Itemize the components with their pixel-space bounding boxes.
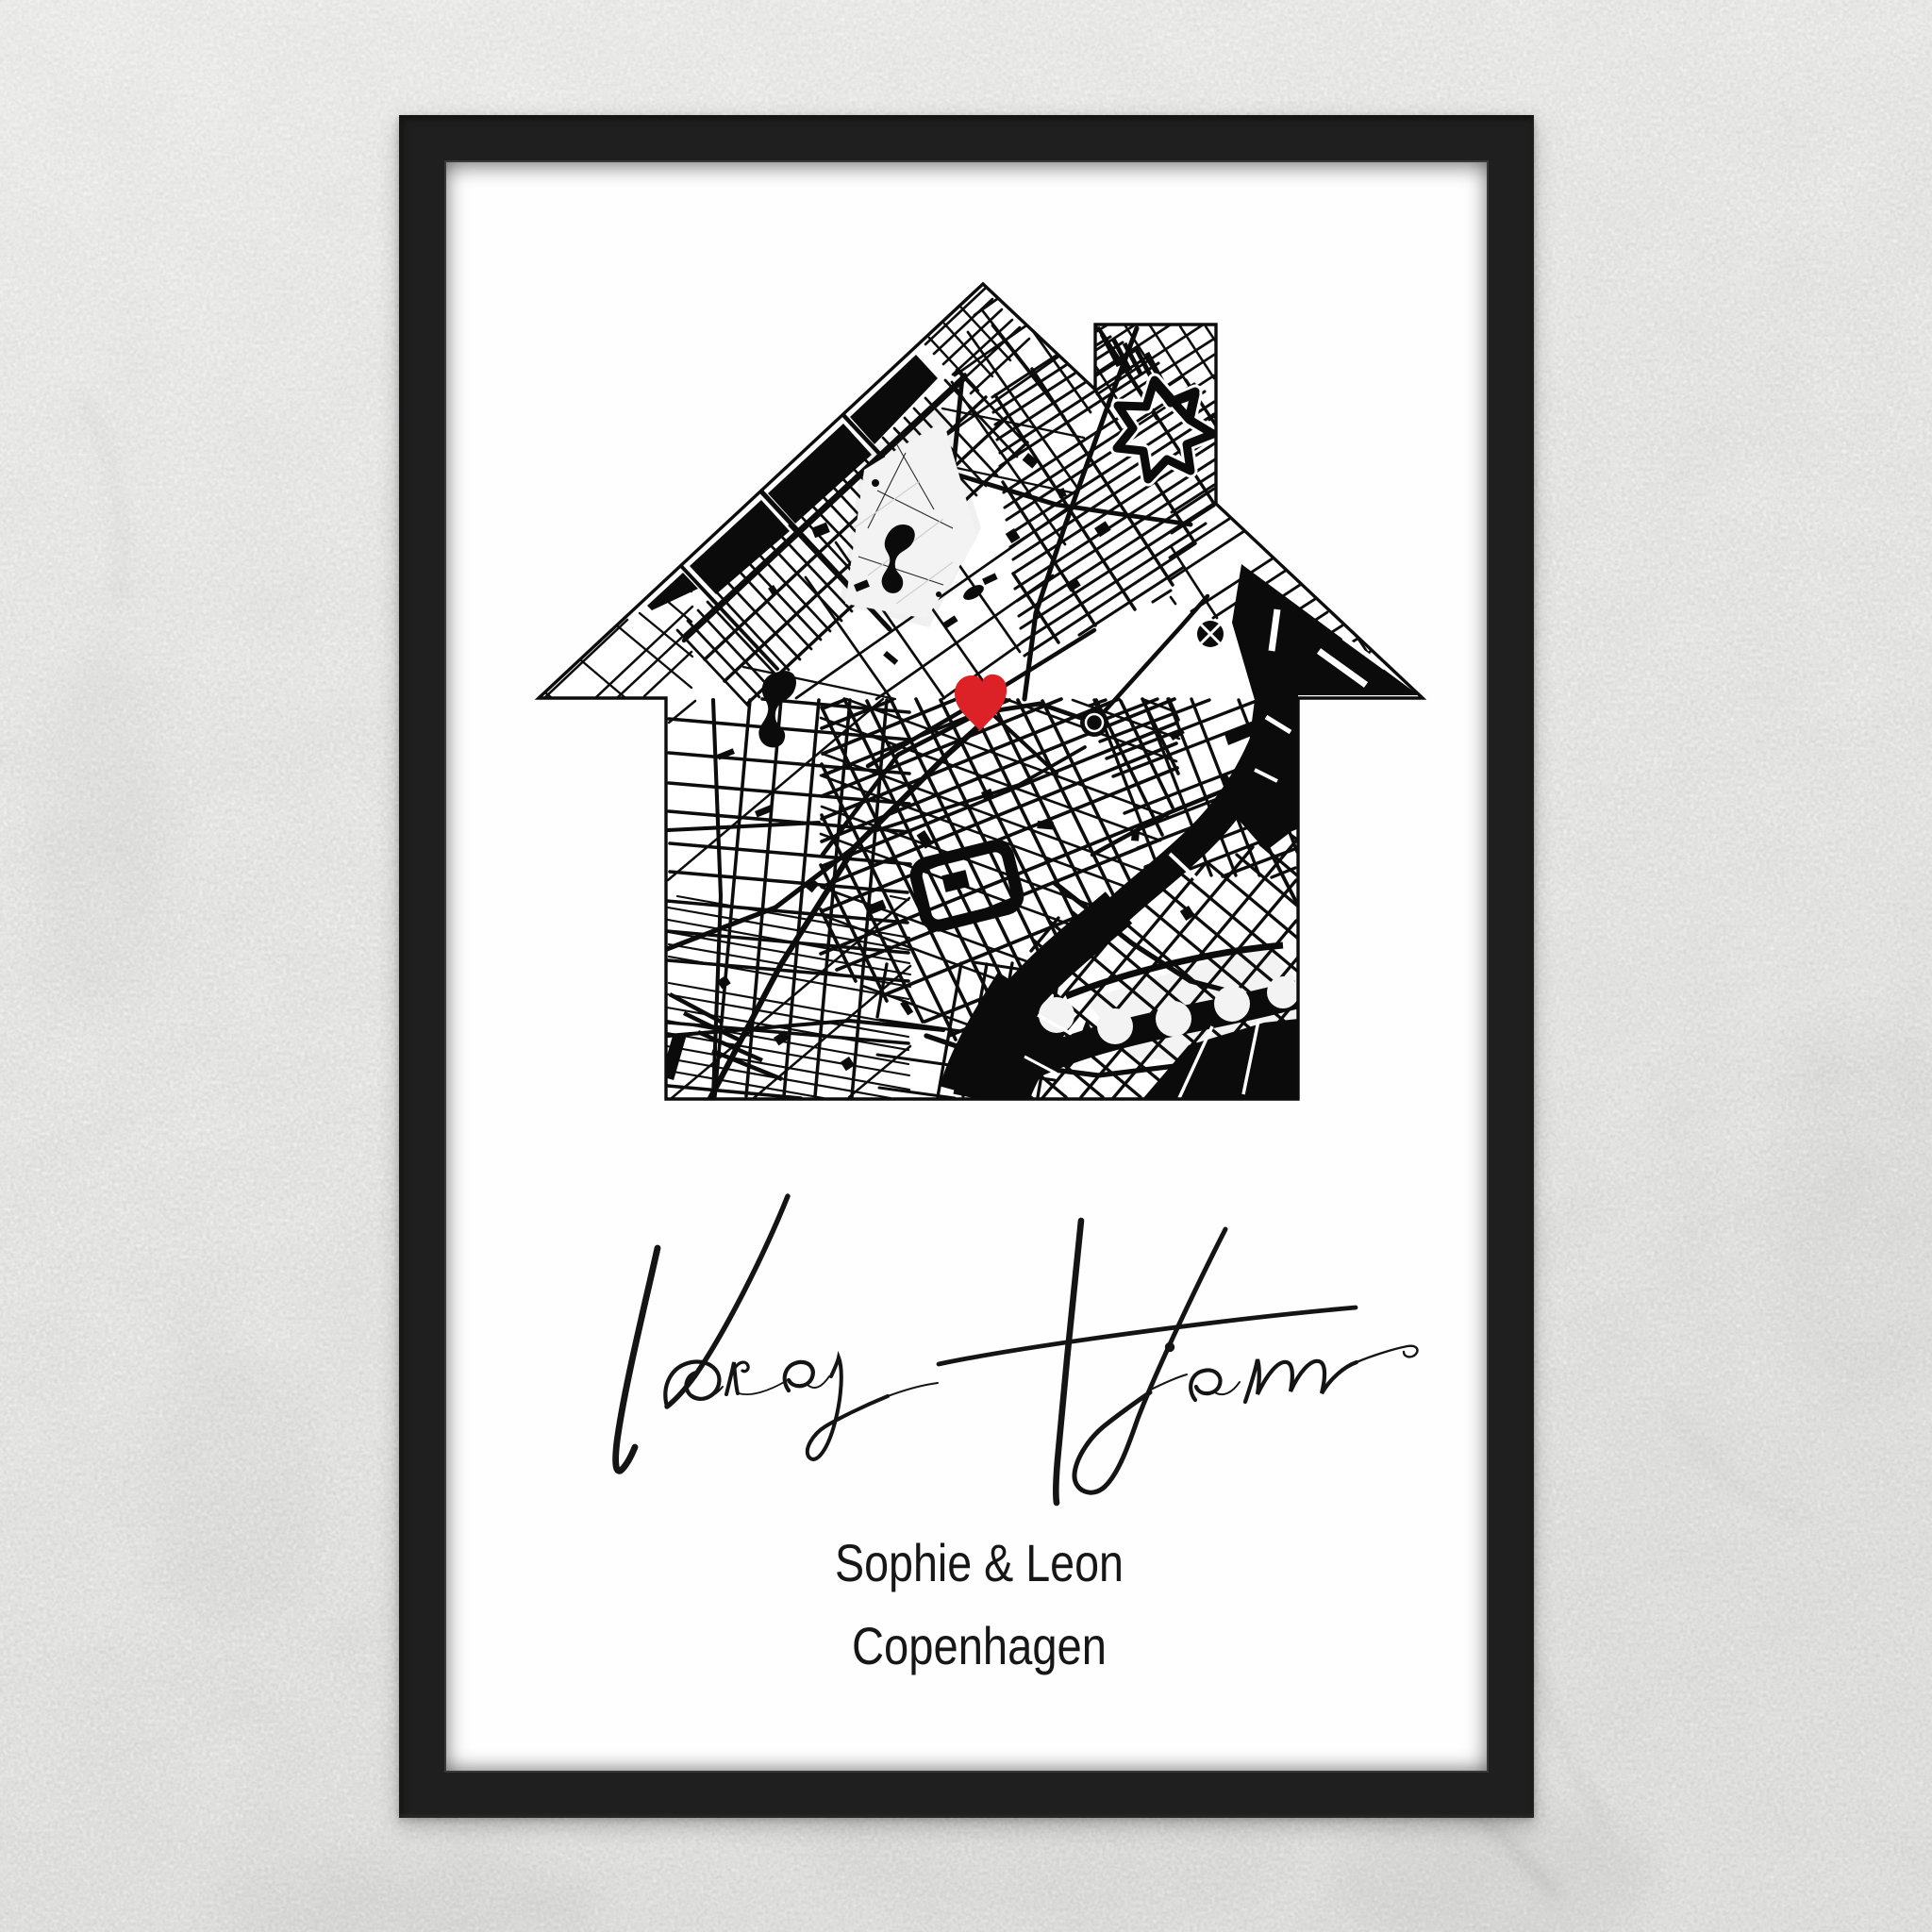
svg-text:Copenhagen: Copenhagen bbox=[852, 1616, 1107, 1675]
svg-text:Sophie & Leon: Sophie & Leon bbox=[835, 1533, 1124, 1592]
